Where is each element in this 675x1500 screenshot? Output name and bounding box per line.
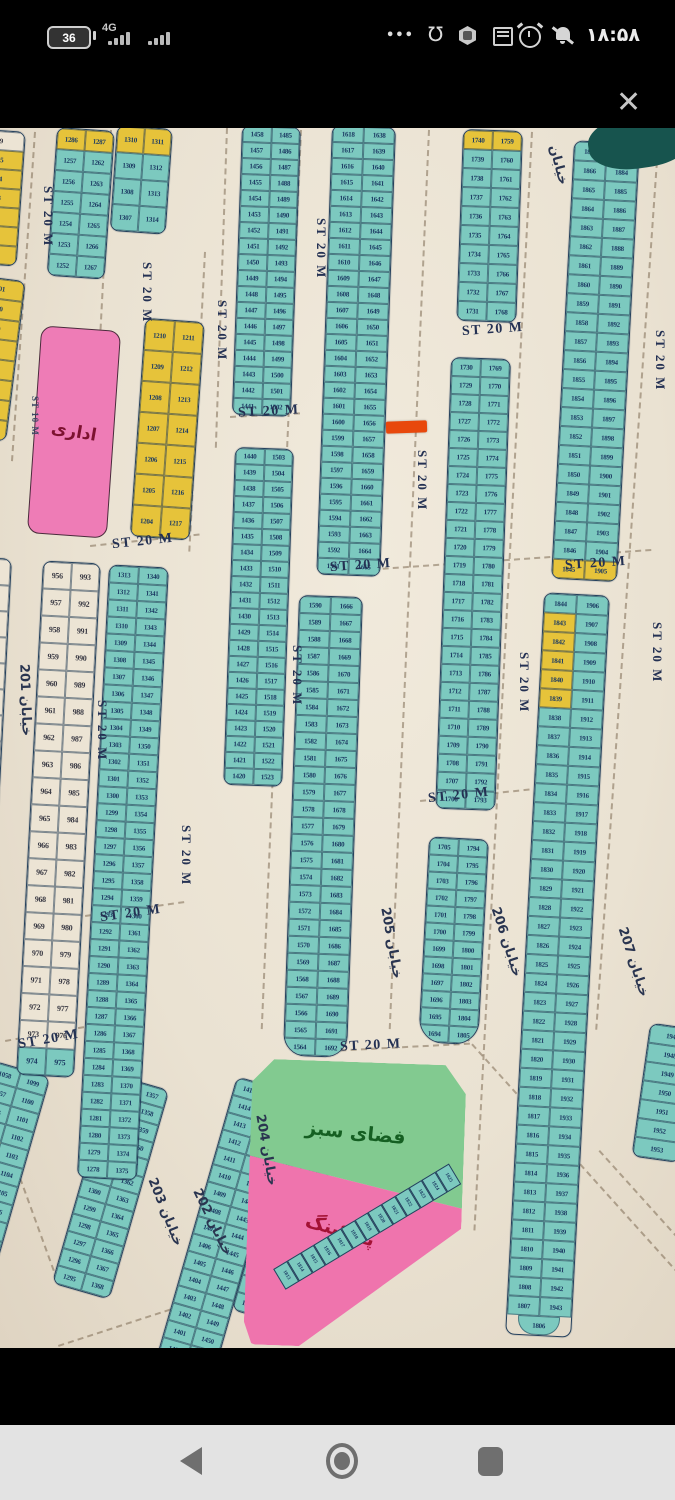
plot-cell: 1788 — [468, 701, 498, 720]
plot-cell: 1766 — [488, 264, 518, 284]
street-name-n205: خیابان 205 — [377, 906, 404, 980]
plot-cell: 1918 — [564, 823, 597, 844]
plot-cell: 1724 — [448, 466, 478, 485]
plot-cell: 1490 — [268, 207, 297, 224]
plot-cell: 1428 — [229, 640, 258, 657]
plot-cell: 1310 — [106, 616, 136, 634]
plot-cell: 1826 — [526, 935, 559, 956]
plot-cell: 1432 — [231, 576, 260, 593]
plot-cell: 1617 — [332, 142, 364, 159]
plot-cell: 1500 — [263, 367, 292, 384]
plot-cell: 1923 — [559, 918, 592, 939]
plot-cell: 1953 — [633, 1137, 675, 1162]
plot-cell: 1886 — [603, 200, 636, 221]
plot-cell: 1903 — [586, 522, 619, 543]
plot-cell: 1805 — [448, 1026, 478, 1044]
plot-cell: 1856 — [563, 350, 596, 371]
plot-cell: 1355 — [125, 822, 155, 840]
plot-cell: 1310 — [116, 128, 145, 154]
plot-cell: 1820 — [520, 1049, 553, 1070]
plot-cell: 1723 — [447, 484, 477, 503]
plot-cell: 1213 — [168, 383, 199, 416]
plot-cell: 957 — [41, 588, 70, 616]
plot-cell: 1343 — [135, 618, 165, 636]
plot-cell: 1761 — [491, 169, 521, 189]
plot-cell: 1823 — [523, 992, 556, 1013]
plot-cell: 1705 — [429, 837, 459, 855]
plot-cell: 979 — [51, 940, 80, 968]
plot-cell: 989 — [65, 671, 94, 699]
plot-cell: 1685 — [319, 920, 351, 938]
plot-cell: 1287 — [84, 130, 113, 153]
plot-cell: 1512 — [259, 593, 288, 610]
plot-cell: 1446 — [236, 318, 265, 335]
plot-cell: 1921 — [561, 880, 594, 901]
plot-cell: 1674 — [326, 733, 358, 751]
street-name-n201: خیابان 201 — [16, 664, 34, 737]
plot-cell: 1812 — [512, 1200, 545, 1221]
plot-cell: 1506 — [262, 497, 291, 514]
plot-cell: 1662 — [350, 511, 382, 528]
plot-cell: 1372 — [110, 1110, 140, 1128]
street-dashed-line — [599, 1150, 675, 1348]
plot-cell: 1455 — [241, 174, 270, 191]
plot-cell: 1361 — [119, 924, 149, 942]
app-hook-icon: ℧ — [428, 22, 443, 46]
plot-cell: 1659 — [352, 463, 384, 480]
plot-cell: 1901 — [588, 485, 621, 506]
recents-button[interactable] — [478, 1447, 503, 1476]
plot-cell: 1205 — [133, 474, 164, 507]
plot-cell: 1596 — [320, 478, 352, 495]
plot-cell: 958 — [40, 615, 69, 643]
plot-cell: 1458 — [242, 128, 271, 143]
street-label-vertical: ST 20 M — [214, 300, 230, 361]
plot-cell: 1570 — [288, 936, 320, 954]
plot-cell: 1492 — [267, 239, 296, 256]
plot-cell: 1590 — [299, 596, 331, 614]
plot-cell: 1643 — [361, 207, 393, 224]
plot-cell: 1828 — [528, 897, 561, 918]
plot-cell: 1896 — [593, 390, 626, 411]
street-name-top: خیابان — [546, 144, 571, 187]
plot-cell: 1908 — [574, 633, 607, 654]
plot-cell: 1824 — [524, 973, 557, 994]
plot-cell: 1485 — [271, 128, 300, 144]
plot-cell: 1851 — [558, 445, 591, 466]
plot-cell: 971 — [21, 966, 50, 994]
plot-cell: 1814 — [514, 1163, 547, 1184]
plot-cell: 1344 — [134, 635, 164, 653]
plot-cell: 1599 — [322, 430, 354, 447]
street-label-horizontal: ST 20 M — [340, 1036, 402, 1055]
plot-cell: 1212 — [171, 352, 202, 385]
plot-cell: 1704 — [428, 854, 458, 872]
plot-cell: 1849 — [556, 483, 589, 504]
plot-cell: 1714 — [441, 646, 471, 665]
plot-cell: 1839 — [539, 688, 572, 709]
plot-cell: 1818 — [518, 1087, 551, 1108]
plot-cell: 1815 — [515, 1144, 548, 1165]
plot-cell: 1307 — [111, 204, 140, 232]
street-label-horizontal: ST 20 M — [111, 531, 174, 553]
plot-cell: 1696 — [421, 990, 451, 1008]
plot-cell: 1589 — [299, 613, 331, 631]
plot-cell: 1941 — [541, 1259, 574, 1280]
plot-cell: 1494 — [266, 271, 295, 288]
plot-cell: 1307 — [104, 667, 134, 685]
plot-cell: 1675 — [325, 750, 357, 768]
plot-cell: 1797 — [455, 890, 485, 908]
plot-cell: 1670 — [328, 665, 360, 683]
status-bar: 36 4G ••• ℧ ۱۸:۵۸ — [0, 0, 675, 65]
plot-cell: 966 — [28, 831, 57, 859]
plot-cell: 969 — [24, 912, 53, 940]
plot-cell: 1210 — [144, 319, 175, 352]
plot-cell: 1736 — [461, 206, 491, 226]
plot-cell: 1283 — [82, 1075, 112, 1093]
administrative-block-label: اداری — [50, 418, 99, 446]
plot-cell: 1936 — [546, 1164, 579, 1185]
plot-cell: 1351 — [128, 754, 158, 772]
plot-column-far1: 1867188318661884186518851864188618631887… — [551, 140, 640, 582]
plot-cell: 1852 — [559, 426, 592, 447]
plot-cell: 1503 — [264, 449, 293, 466]
plot-cell: 1862 — [569, 236, 602, 257]
plot-cell: 984 — [58, 806, 87, 834]
plot-cell: 1811 — [511, 1219, 544, 1240]
plot-cell: 1263 — [82, 172, 111, 195]
plot-cell: 975 — [45, 1048, 74, 1076]
plot-cell: 1645 — [359, 239, 391, 256]
plot-cell: 1927 — [555, 993, 588, 1014]
street-label-vertical: ST 20 M — [652, 330, 668, 391]
plot-cell: 1888 — [601, 238, 634, 259]
plot-cell: 990 — [66, 644, 95, 672]
back-button[interactable] — [180, 1447, 202, 1475]
home-button[interactable] — [326, 1443, 358, 1479]
plot-cell: 1495 — [265, 287, 294, 304]
plot-cell: 1841 — [541, 650, 574, 671]
plot-cell: 1443 — [234, 366, 263, 383]
plot-cell: 1853 — [560, 407, 593, 428]
plot-cell: 1597 — [321, 462, 353, 479]
plot-column-r1: 1740175917391760173817611737176217361763… — [456, 129, 523, 323]
plot-cell: 1309 — [106, 633, 136, 651]
plot-cell: 1282 — [82, 1092, 112, 1110]
plot-cell: 1513 — [258, 609, 287, 626]
plot-cell: 1734 — [459, 244, 489, 264]
plot-cell: 1914 — [568, 747, 601, 768]
plot-cell: 1313 — [139, 180, 168, 208]
plot-cell: 1214 — [166, 414, 197, 447]
plot-cell: 1764 — [489, 226, 519, 246]
plot-cell: 1773 — [478, 431, 508, 450]
plot-cell: 1667 — [330, 614, 362, 632]
plot-cell: 981 — [54, 887, 83, 915]
plot-cell: 1572 — [289, 902, 321, 920]
plot-cell: 1209 — [142, 350, 173, 383]
plot-map-photo[interactable]: اداری فضای سبز پارکینگ 18131814181518161… — [0, 128, 675, 1348]
plot-cell: 1583 — [295, 715, 327, 733]
plot-cell: 964 — [31, 777, 60, 805]
street-label-horizontal: ST 20 M — [238, 402, 300, 421]
plot-cell: 1574 — [290, 868, 322, 886]
plot-cell: 1684 — [320, 903, 352, 921]
plot-cell: 1668 — [329, 631, 361, 649]
plot-cell: 1608 — [327, 286, 359, 303]
plot-cell: 1911 — [571, 690, 604, 711]
plot-cell: 1833 — [533, 802, 566, 823]
plot-cell — [0, 662, 5, 689]
plot-cell: 980 — [52, 914, 81, 942]
plot-cell — [0, 558, 11, 585]
plot-cell: 1607 — [326, 302, 358, 319]
plot-cell: 1509 — [261, 545, 290, 562]
plot-cell: 1718 — [444, 574, 474, 593]
plot-cell: 1653 — [355, 367, 387, 384]
plot-cell: 1892 — [597, 314, 630, 335]
street-label-horizontal: ST 20 M — [462, 320, 525, 340]
battery-icon: 36 — [47, 26, 91, 49]
plot-cell — [0, 636, 7, 663]
plot-cell: 1857 — [564, 331, 597, 352]
plot-cell: 1916 — [566, 785, 599, 806]
plot-cell: 1735 — [460, 225, 490, 245]
plot-column-edge_top: 669125512541253125212511250 — [0, 128, 26, 266]
plot-cell: 1809 — [509, 1257, 542, 1278]
alarm-clock-icon — [519, 26, 541, 48]
red-highlight-marker — [386, 420, 427, 433]
street-label-vertical: ST 20 M — [414, 450, 430, 511]
plot-cell: 1582 — [295, 732, 327, 750]
plot-cell: 1772 — [478, 413, 508, 432]
signal-bars-icon-2 — [148, 32, 170, 45]
plot-cell: 1354 — [126, 805, 156, 823]
plot-cell: 1843 — [543, 612, 576, 633]
plot-cell: 985 — [59, 779, 88, 807]
plot-cell: 1721 — [446, 520, 476, 539]
plot-cell: 1605 — [325, 334, 357, 351]
plot-cell: 1453 — [240, 206, 269, 223]
plot-cell: 1429 — [229, 624, 258, 641]
plot-cell: 1737 — [461, 187, 491, 207]
plot-cell: 1673 — [326, 716, 358, 734]
plot-cell: 1803 — [450, 992, 480, 1010]
plot-cell: 1697 — [422, 973, 452, 991]
plot-cell: 1510 — [260, 561, 289, 578]
plot-cell: 1421 — [225, 752, 254, 769]
plot-cell: 1781 — [473, 575, 503, 594]
plot-column-c3: 13101311130913121308131313071314 — [110, 128, 173, 235]
plot-cell: 1579 — [293, 783, 325, 801]
plot-cell: 1496 — [265, 303, 294, 320]
plot-cell: 1719 — [444, 556, 474, 575]
plot-cell: 1926 — [556, 974, 589, 995]
plot-cell: 1311 — [107, 599, 137, 617]
plot-cell: 1568 — [286, 970, 318, 988]
plot-cell: 1837 — [537, 726, 570, 747]
plot-cell: 1649 — [357, 303, 389, 320]
plot-cell: 1915 — [567, 766, 600, 787]
plot-cell: 1817 — [517, 1106, 550, 1127]
plot-cell: 1444 — [235, 350, 264, 367]
plot-cell: 1499 — [263, 351, 292, 368]
plot-cell: 972 — [20, 993, 49, 1021]
plot-cell: 1449 — [237, 270, 266, 287]
plot-cell: 1296 — [94, 854, 124, 872]
plot-column-L1: 1058109910571100105611011055110210541103… — [0, 1060, 51, 1334]
plot-cell: 1712 — [440, 682, 470, 701]
plot-cell: 956 — [43, 562, 72, 590]
plot-cell: 959 — [38, 642, 67, 670]
plot-cell: 1804 — [449, 1009, 479, 1027]
plot-cell: 1694 — [419, 1024, 449, 1042]
plot-cell: 1819 — [519, 1068, 552, 1089]
plot-cell: 1666 — [330, 597, 362, 615]
plot-cell: 1433 — [232, 560, 261, 577]
viewer-top-band — [0, 65, 675, 128]
plot-cell: 1644 — [360, 223, 392, 240]
plot-cell: 1762 — [490, 188, 520, 208]
plot-cell: 1340 — [138, 567, 168, 585]
plot-cell: 1294 — [92, 888, 122, 906]
plot-column-edge_mid — [0, 557, 12, 872]
plot-cell: 1770 — [480, 377, 510, 396]
plot-cell: 1699 — [424, 939, 454, 957]
plot-cell: 1655 — [354, 399, 386, 416]
plot-cell: 1920 — [562, 861, 595, 882]
plot-cell: 1650 — [357, 319, 389, 336]
plot-cell: 1427 — [228, 656, 257, 673]
street-label-vertical: ST 20 M — [516, 652, 532, 713]
plot-cell: 1430 — [230, 608, 259, 625]
battery-percent: 36 — [62, 31, 75, 45]
plot-cell: 1507 — [262, 513, 291, 530]
plot-cell: 1789 — [468, 719, 498, 738]
plot-column-mid_top: 1618163816171639161616401615164116141642… — [316, 128, 396, 577]
plot-cell: 1594 — [319, 510, 351, 527]
plot-cell: 1934 — [548, 1126, 581, 1147]
plot-cell: 1309 — [114, 152, 143, 180]
plot-cell: 1514 — [258, 625, 287, 642]
plot-cell: 1612 — [329, 222, 361, 239]
plot-cell: 1777 — [475, 503, 505, 522]
plot-cell: 1830 — [530, 859, 563, 880]
plot-cell: 1571 — [288, 919, 320, 937]
plot-cell: 1314 — [138, 206, 167, 234]
plot-cell: 1816 — [516, 1125, 549, 1146]
plot-cell: 1604 — [325, 350, 357, 367]
plot-cell: 1928 — [554, 1012, 587, 1033]
notes-icon — [493, 27, 513, 46]
plot-cell: 1832 — [532, 821, 565, 842]
plot-cell: 1855 — [562, 369, 595, 390]
plot-cell: 1780 — [473, 557, 503, 576]
plot-cell: 1776 — [476, 485, 506, 504]
plot-cell: 1652 — [356, 351, 388, 368]
plot-cell: 1774 — [477, 449, 507, 468]
plot-cell: 1435 — [233, 528, 262, 545]
plot-cell: 1939 — [543, 1221, 576, 1242]
plot-cell: 1297 — [95, 837, 125, 855]
plot-cell: 1265 — [79, 214, 108, 237]
plot-cell: 1255 — [0, 148, 24, 171]
plot-cell: 1768 — [486, 302, 516, 322]
plot-cell: 1250 — [0, 243, 17, 266]
plot-cell: 1286 — [57, 128, 86, 151]
plot-cell: 1521 — [254, 737, 283, 754]
plot-cell: 1420 — [224, 768, 253, 785]
plot-cell: 1519 — [255, 705, 284, 722]
plot-cell: 1493 — [266, 255, 295, 272]
plot-cell: 1438 — [234, 480, 263, 497]
plot-cell: 1442 — [233, 382, 262, 399]
plot-cell: 1595 — [320, 494, 352, 511]
plot-cell: 1678 — [323, 801, 355, 819]
plot-cell: 1252 — [0, 205, 20, 228]
plot-cell: 1703 — [427, 871, 457, 889]
plot-cell: 1312 — [141, 154, 170, 182]
plot-cell: 1835 — [535, 764, 568, 785]
plot-cell: 1638 — [363, 128, 395, 144]
plot-cell: 1932 — [550, 1088, 583, 1109]
plot-cell: 1207 — [137, 412, 168, 445]
plot-cell: 1656 — [353, 415, 385, 432]
plot-cell: 1615 — [331, 174, 363, 191]
street-label-vertical: ST 20 M — [40, 186, 56, 247]
plot-cell: 1488 — [269, 175, 298, 192]
plot-cell: 1808 — [508, 1276, 541, 1297]
plot-cell: 1821 — [521, 1030, 554, 1051]
plot-cell: 1861 — [568, 255, 601, 276]
plot-cell: 1646 — [359, 255, 391, 272]
plot-cell: 1825 — [525, 954, 558, 975]
plot-cell: 960 — [37, 669, 66, 697]
plot-cell: 1710 — [439, 718, 469, 737]
close-button[interactable]: ✕ — [610, 84, 647, 121]
plot-cell: 1520 — [254, 721, 283, 738]
battery-nub — [93, 31, 96, 40]
plot-cell: 1778 — [475, 521, 505, 540]
plot-cell: 1898 — [591, 428, 624, 449]
plot-cell: 1647 — [358, 271, 390, 288]
plot-cell: 1454 — [240, 190, 269, 207]
plot-cell: 1613 — [330, 206, 362, 223]
plot-cell: 1254 — [0, 167, 22, 190]
plot-cell: 1722 — [446, 502, 476, 521]
plot-cell: 1366 — [115, 1008, 145, 1026]
plot-cell: 1930 — [552, 1050, 585, 1071]
plot-cell: 1769 — [480, 359, 510, 378]
plot-cell: 1935 — [547, 1145, 580, 1166]
plot-cell: 1725 — [448, 448, 478, 467]
plot-cell: 1206 — [135, 443, 166, 476]
plot-cell: 1739 — [463, 149, 493, 169]
plot-cell: 1840 — [540, 669, 573, 690]
plot-cell: 1267 — [76, 256, 105, 279]
plot-cell: 1642 — [361, 191, 393, 208]
plot-cell: 1887 — [602, 219, 635, 240]
plot-cell: 1523 — [253, 769, 282, 786]
plot-cell: 1651 — [356, 335, 388, 352]
plot-cell: 1943 — [539, 1297, 572, 1318]
plot-cell: 1345 — [134, 652, 164, 670]
plot-cell: 1687 — [318, 954, 350, 972]
plot-cell: 1657 — [353, 431, 385, 448]
plot-cell: 1357 — [123, 856, 153, 874]
plot-cell: 1285 — [84, 1041, 114, 1059]
